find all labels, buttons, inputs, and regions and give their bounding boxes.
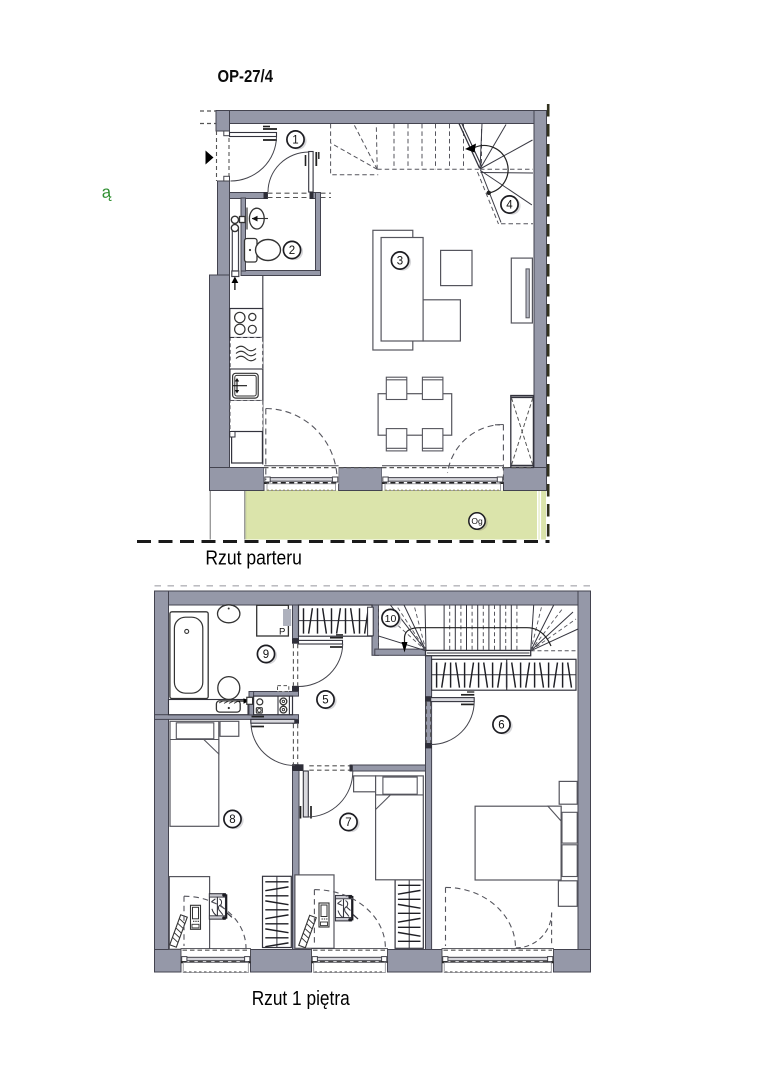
svg-text:7: 7 [345,817,351,829]
svg-text:1: 1 [292,135,298,147]
svg-text:4: 4 [506,200,513,212]
svg-text:2: 2 [289,245,295,257]
svg-text:6: 6 [498,720,504,732]
svg-text:Rzut parteru: Rzut parteru [205,547,302,569]
svg-text:8: 8 [229,814,235,826]
svg-text:Og: Og [471,516,483,526]
svg-text:9: 9 [263,649,269,661]
svg-text:10: 10 [385,613,397,625]
svg-text:OP-27/4: OP-27/4 [218,66,274,86]
svg-text:ą: ą [101,182,112,202]
svg-text:3: 3 [397,256,403,268]
svg-text:5: 5 [322,695,328,707]
svg-text:P: P [279,627,285,638]
svg-text:Rzut 1 piętra: Rzut 1 piętra [252,988,351,1010]
